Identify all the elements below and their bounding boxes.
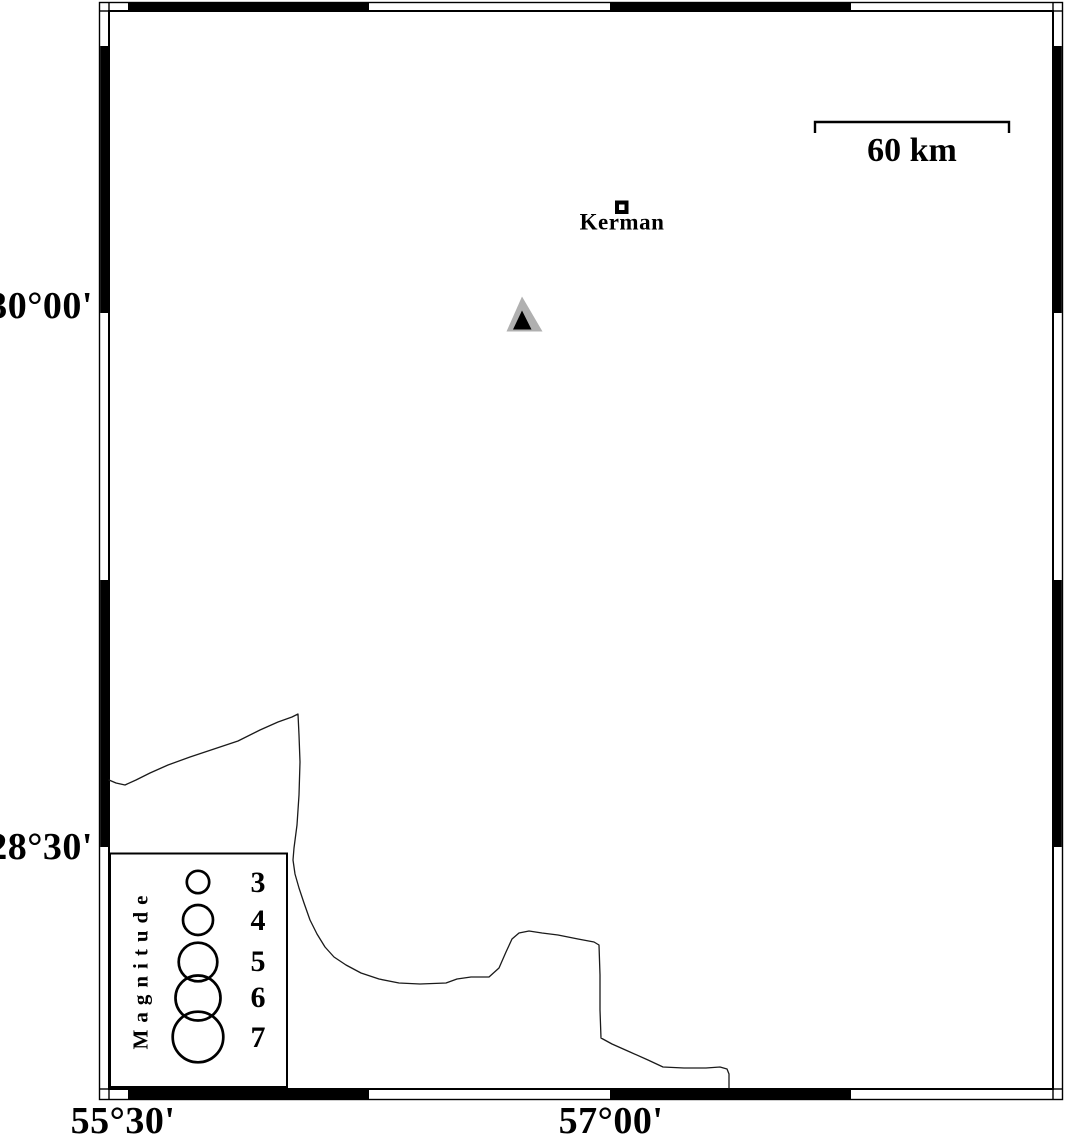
frame-band-segment — [128, 3, 369, 11]
frame-band-segment — [1053, 580, 1062, 847]
frame-band-segment — [128, 1090, 369, 1100]
legend-title: Magnitude — [131, 888, 152, 1049]
frame-band-segment — [1053, 46, 1062, 313]
frame-band-segment — [610, 1090, 851, 1100]
legend-magnitude-7: 7 — [251, 1023, 266, 1053]
lat-tick-label-28-30: 28°30' — [0, 828, 93, 866]
lon-tick-label-55-30: 55°30' — [71, 1102, 176, 1138]
map-canvas — [0, 0, 1066, 1138]
legend-magnitude-3: 3 — [251, 868, 266, 898]
frame-band-segment — [100, 580, 109, 847]
legend-magnitude-5: 5 — [251, 947, 266, 977]
legend-magnitude-6: 6 — [251, 983, 266, 1013]
legend-magnitude-4: 4 — [251, 906, 266, 936]
scale-bar-label: 60 km — [867, 134, 957, 168]
lon-tick-label-57-00: 57°00' — [559, 1102, 664, 1138]
seismicity-map-figure: 30°00' 28°30' 55°30' 57°00' 60 km Kerman… — [0, 0, 1066, 1138]
frame-band-segment — [610, 3, 851, 11]
frame-band-segment — [100, 46, 109, 313]
lat-tick-label-30-00: 30°00' — [0, 287, 93, 325]
city-label: Kerman — [580, 211, 665, 234]
